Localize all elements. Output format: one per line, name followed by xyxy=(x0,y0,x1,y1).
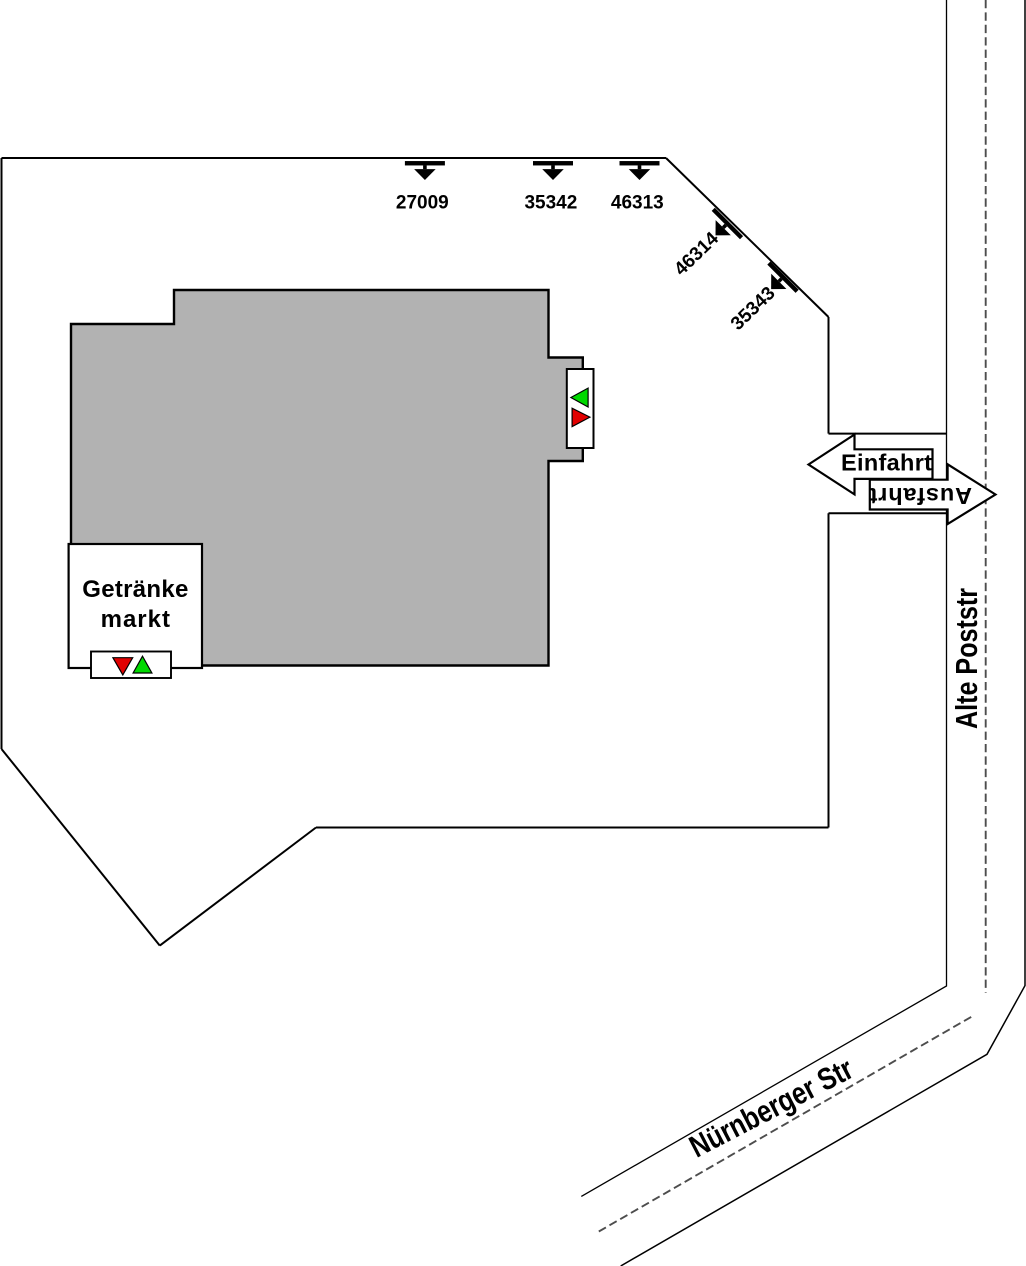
svg-text:Einfahrt: Einfahrt xyxy=(841,450,932,476)
svg-text:Ausfahrt: Ausfahrt xyxy=(869,483,972,509)
svg-text:46313: 46313 xyxy=(611,192,664,213)
svg-text:markt: markt xyxy=(101,606,170,633)
svg-text:Getränke: Getränke xyxy=(82,576,188,603)
svg-text:35342: 35342 xyxy=(524,192,577,213)
svg-text:27009: 27009 xyxy=(396,192,449,213)
svg-text:Alte Poststr: Alte Poststr xyxy=(949,588,984,729)
